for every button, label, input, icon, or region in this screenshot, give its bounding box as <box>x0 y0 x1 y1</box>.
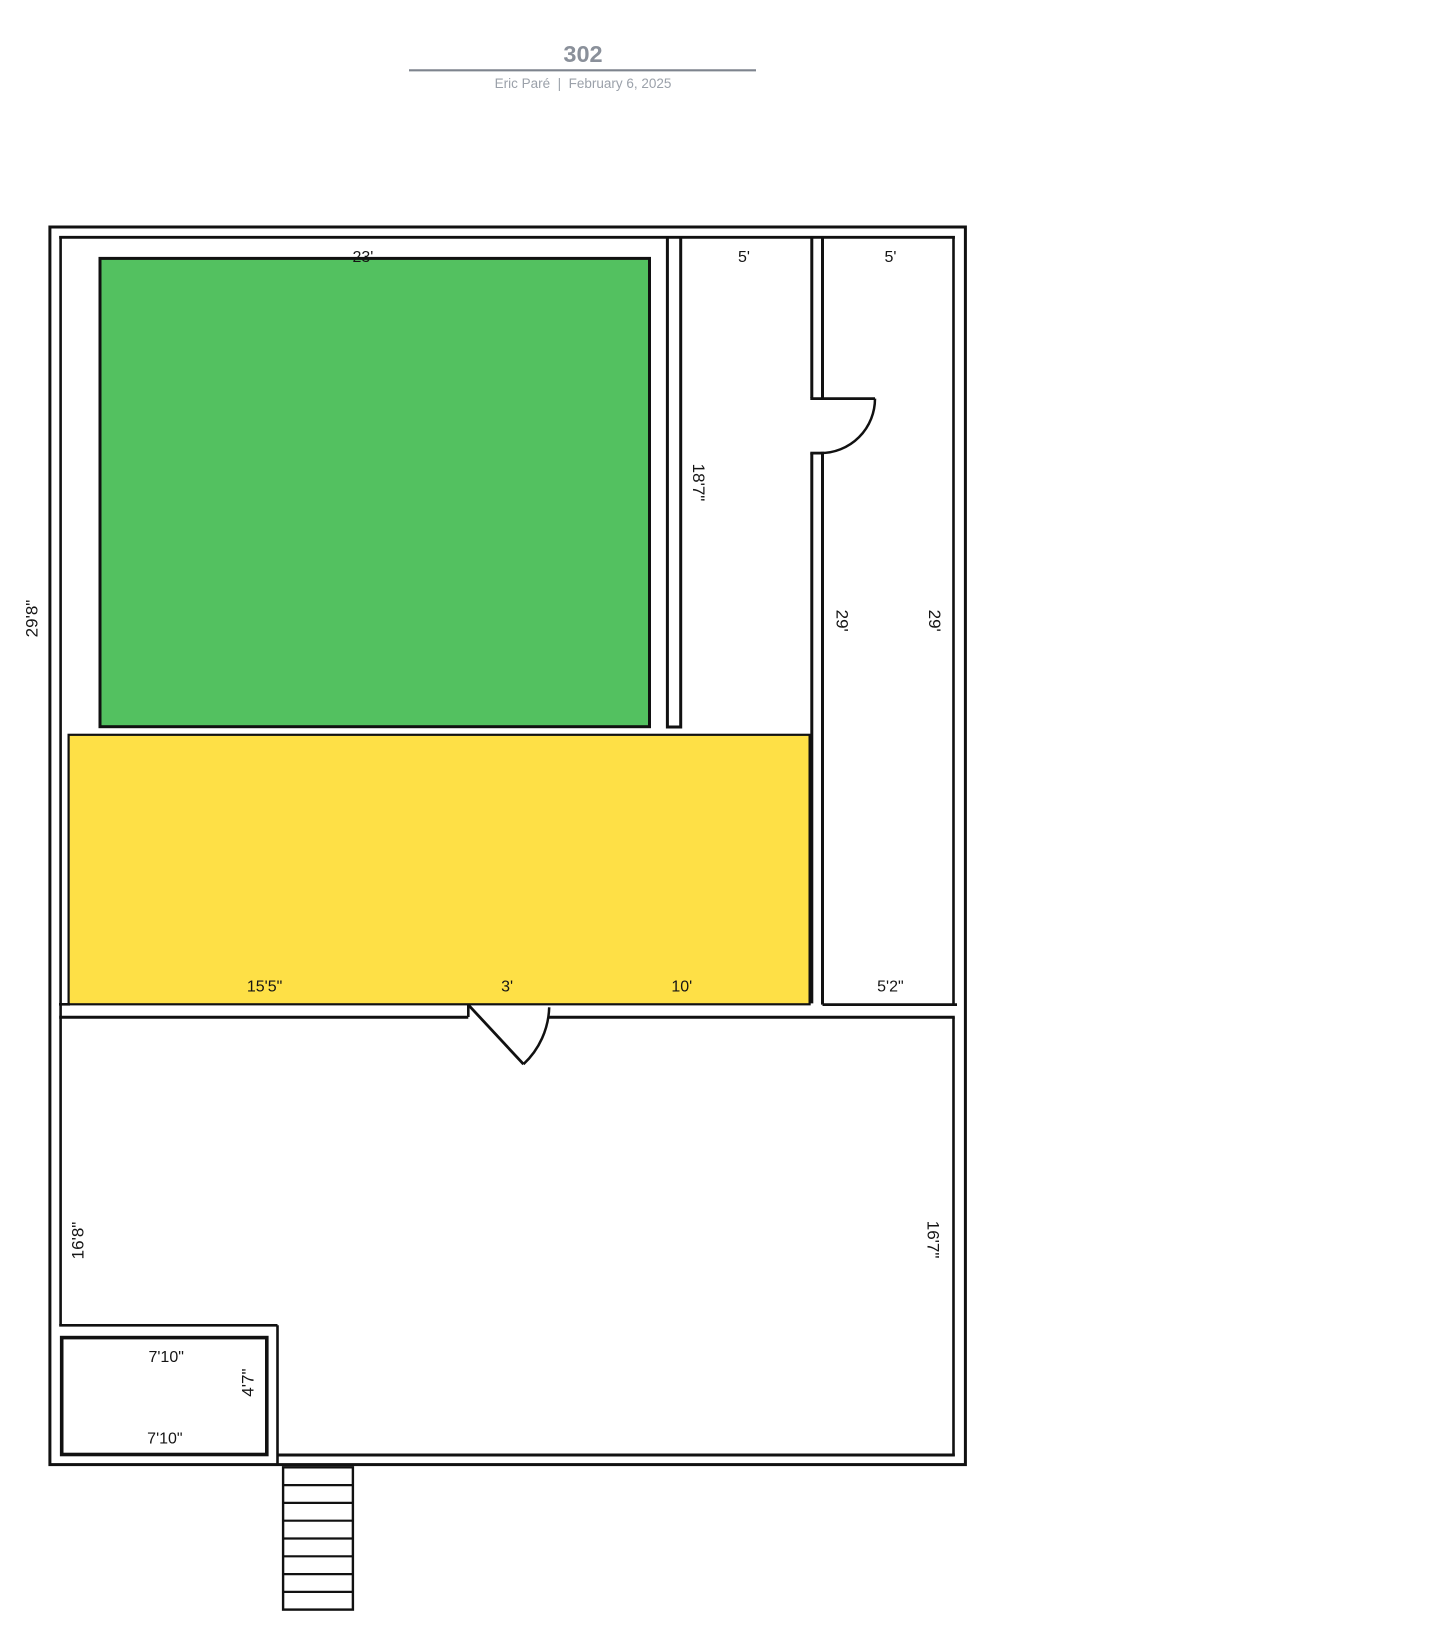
svg-text:5': 5' <box>885 249 897 266</box>
svg-text:302: 302 <box>563 41 602 67</box>
svg-text:7'10": 7'10" <box>148 1349 183 1366</box>
svg-text:16'7": 16'7" <box>923 1221 942 1259</box>
svg-text:4'7": 4'7" <box>238 1368 257 1396</box>
svg-text:18'7": 18'7" <box>689 464 708 502</box>
svg-text:10': 10' <box>671 979 692 996</box>
svg-text:29'8": 29'8" <box>23 600 42 638</box>
svg-text:3': 3' <box>501 979 513 996</box>
svg-text:29': 29' <box>925 610 944 632</box>
svg-text:7'10": 7'10" <box>147 1431 182 1448</box>
svg-text:16'8": 16'8" <box>69 1222 88 1260</box>
svg-text:23': 23' <box>352 249 373 266</box>
svg-text:15'5": 15'5" <box>247 979 282 996</box>
svg-text:Eric Paré | February 6, 2025: Eric Paré | February 6, 2025 <box>495 76 672 91</box>
svg-text:5': 5' <box>738 249 750 266</box>
svg-text:5'2": 5'2" <box>877 978 904 995</box>
svg-text:29': 29' <box>832 610 851 632</box>
